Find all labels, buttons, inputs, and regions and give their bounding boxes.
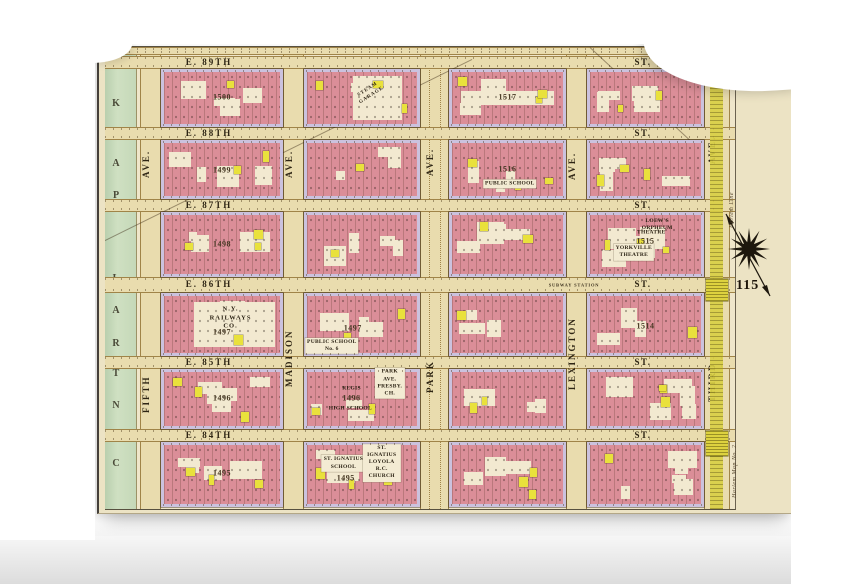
frame-building <box>618 105 623 112</box>
block-lot-ticks <box>589 426 702 428</box>
avenue-ave-label-park: AVE. <box>425 142 435 176</box>
city-block: 1495 <box>161 442 283 507</box>
city-block <box>304 212 420 277</box>
block-lot-ticks <box>306 426 418 428</box>
building-detail-speckle <box>452 372 563 426</box>
poi-label-regis2: HIGH SCHOOL <box>329 405 372 412</box>
poi-label-railways: N.Y. RAILWAYS CO. <box>204 306 256 331</box>
city-block <box>587 140 704 199</box>
central-park-label-letter: T <box>109 368 123 380</box>
frame-building <box>331 250 339 258</box>
frame-building <box>234 166 242 174</box>
building-detail-speckle <box>307 215 417 274</box>
city-block: 1496REGISHIGH SCHOOLPARK AVE. PRESBY. CH… <box>304 369 420 429</box>
city-block <box>449 212 566 277</box>
frame-building <box>538 90 547 98</box>
block-number: 1495 <box>213 468 231 477</box>
photo-table-surface <box>0 536 850 584</box>
street-s90 <box>105 47 735 55</box>
avenue-name-label-park: PARK <box>425 351 435 393</box>
street-name-label: E. 85TH <box>186 357 233 367</box>
city-block: STEAM GARAGE <box>304 69 420 127</box>
block-lot-ticks <box>589 294 702 296</box>
block-lot-ticks <box>451 213 564 215</box>
block-number: 1517 <box>499 92 517 101</box>
block-lot-ticks <box>163 504 281 506</box>
block-lot-ticks <box>306 124 418 126</box>
block-lot-ticks <box>451 504 564 506</box>
poi-label-orpheum2: THEATRE <box>637 230 666 237</box>
avenue-ave-label-lexington: AVE. <box>567 146 577 180</box>
block-lot-ticks <box>589 504 702 506</box>
city-block: 1496 <box>161 369 283 429</box>
city-block: 1515LOEW'S ORPHEUMTHEATREYORKVILLE THEAT… <box>587 212 704 277</box>
block-lot-ticks <box>163 196 281 198</box>
frame-building <box>605 240 610 250</box>
block-buildings <box>452 445 563 504</box>
city-block: 1497N.Y. RAILWAYS CO. <box>161 293 283 356</box>
block-lot-ticks <box>451 196 564 198</box>
block-lot-ticks <box>163 274 281 276</box>
plate-number: 115 <box>736 278 759 294</box>
block-lot-ticks <box>589 196 702 198</box>
avenue-name-label-lexington: LEXINGTON <box>567 308 577 390</box>
poi-label-ps_lex: PUBLIC SCHOOL <box>483 179 537 188</box>
street-name-label: E. 87TH <box>186 200 233 210</box>
frame-building <box>482 397 487 405</box>
block-buildings <box>452 372 563 426</box>
city-block <box>587 369 704 429</box>
block-lot-ticks <box>306 274 418 276</box>
block-number: 1495 <box>337 473 355 482</box>
block-lot-ticks <box>451 370 564 372</box>
building-detail-speckle <box>452 445 563 504</box>
central-park-label-letter: A <box>109 158 123 170</box>
block-lot-ticks <box>163 353 281 355</box>
page-background-top <box>0 0 850 44</box>
street-suffix-label: ST. <box>634 279 651 289</box>
block-lot-ticks <box>163 370 281 372</box>
block-lot-ticks <box>451 274 564 276</box>
atlas-sheet: KRAPLARTNECE. 89THST.E. 88THST.E. 87THST… <box>97 46 793 514</box>
block-lot-ticks <box>451 353 564 355</box>
subway-station-label: SUBWAY STATION <box>549 283 600 288</box>
block-lot-ticks <box>589 370 702 372</box>
central-park-label-letter: K <box>109 98 123 110</box>
block-lot-ticks <box>451 294 564 296</box>
city-block <box>449 442 566 507</box>
frame-building <box>620 165 629 172</box>
avenue-name-label-fifth: FIFTH <box>141 363 151 413</box>
frame-building <box>255 243 262 250</box>
city-block: 1516PUBLIC SCHOOL <box>449 140 566 199</box>
frame-building <box>656 91 662 100</box>
frame-building <box>356 164 364 171</box>
street-name-label: E. 89TH <box>186 57 233 67</box>
block-buildings <box>452 296 563 353</box>
city-block <box>304 140 420 199</box>
poi-label-regis: REGIS <box>342 385 361 392</box>
block-lot-ticks <box>306 443 418 445</box>
street-suffix-label: ST. <box>634 200 651 210</box>
city-block <box>587 442 704 507</box>
frame-building <box>458 77 467 86</box>
block-lot-ticks <box>306 504 418 506</box>
city-block: 1500 <box>161 69 283 127</box>
city-block: 1497PUBLIC SCHOOL No. 6 <box>304 293 420 356</box>
central-park-label-letter: A <box>109 305 123 317</box>
frame-building <box>195 387 202 398</box>
block-lot-ticks <box>306 353 418 355</box>
frame-building <box>255 480 262 488</box>
central-park-label-letter: C <box>109 458 123 470</box>
block-lot-ticks <box>163 426 281 428</box>
frame-building <box>263 151 269 162</box>
block-lot-ticks <box>451 124 564 126</box>
city-block <box>449 293 566 356</box>
frame-building <box>227 81 234 89</box>
block-lot-ticks <box>163 294 281 296</box>
city-block: 1514 <box>587 293 704 356</box>
block-lot-ticks <box>451 426 564 428</box>
frame-building <box>173 378 182 386</box>
city-block: 1517 <box>449 69 566 127</box>
building-detail-speckle <box>590 372 701 426</box>
block-lot-ticks <box>306 141 418 143</box>
block-lot-ticks <box>589 443 702 445</box>
frame-building <box>529 490 536 499</box>
block-lot-ticks <box>163 124 281 126</box>
street-name-label: E. 88TH <box>186 128 233 138</box>
block-number: 1498 <box>213 240 231 249</box>
block-lot-ticks <box>589 274 702 276</box>
frame-building <box>523 235 533 243</box>
frame-building <box>312 408 320 416</box>
street-name-label: E. 84TH <box>186 430 233 440</box>
central-park-label-letter: R <box>109 338 123 350</box>
block-number: 1514 <box>637 321 655 330</box>
frame-building <box>688 327 696 337</box>
frame-building <box>468 159 477 167</box>
central-park-label-letter: N <box>109 400 123 412</box>
elevated-station <box>706 431 728 456</box>
city-block: 1495ST. IGNATIUS SCHOOLST. IGNATIUS LOYO… <box>304 442 420 507</box>
frame-building <box>402 104 408 112</box>
frame-building <box>661 397 670 408</box>
frame-building <box>536 97 541 103</box>
block-buildings <box>307 215 417 274</box>
block-lot-ticks <box>451 70 564 72</box>
street-lot-ticks <box>105 51 735 53</box>
block-lot-ticks <box>163 213 281 215</box>
frame-building <box>663 247 669 253</box>
frame-building <box>457 311 466 320</box>
block-buildings <box>590 445 701 504</box>
frame-building <box>480 222 488 231</box>
block-lot-ticks <box>163 443 281 445</box>
block-lot-ticks <box>451 443 564 445</box>
frame-building <box>530 468 537 477</box>
frame-building <box>398 309 405 320</box>
street-suffix-label: ST. <box>634 357 651 367</box>
frame-building <box>234 335 243 345</box>
block-number: 1516 <box>499 164 517 173</box>
frame-building <box>644 169 650 180</box>
block-lot-ticks <box>306 294 418 296</box>
building-detail-speckle <box>452 215 563 274</box>
frame-building <box>185 243 193 250</box>
block-lot-ticks <box>589 124 702 126</box>
avenue-ave-label-fifth: AVE. <box>141 144 151 178</box>
city-block: 1498 <box>161 212 283 277</box>
frame-building <box>605 454 612 463</box>
frame-building <box>470 403 477 414</box>
margin-note-top: Harlem Line <box>729 164 735 228</box>
block-buildings <box>590 372 701 426</box>
block-lot-ticks <box>306 370 418 372</box>
building-detail-speckle <box>452 296 563 353</box>
block-buildings <box>590 143 701 196</box>
block-lot-ticks <box>589 141 702 143</box>
frame-building <box>316 81 323 91</box>
frame-building <box>241 412 249 422</box>
poi-label-ps6: PUBLIC SCHOOL No. 6 <box>305 338 359 354</box>
block-lot-ticks <box>163 70 281 72</box>
street-lot-ticks <box>105 48 735 50</box>
avenue-name-label-madison: MADISON <box>284 321 294 387</box>
page-background-left <box>0 0 95 540</box>
block-number: 1499 <box>213 165 231 174</box>
frame-building <box>254 230 263 239</box>
map-area: KRAPLARTNECE. 89THST.E. 88THST.E. 87THST… <box>105 46 736 510</box>
street-suffix-label: ST. <box>634 128 651 138</box>
city-block: 1499 <box>161 140 283 199</box>
block-lot-ticks <box>306 213 418 215</box>
city-block <box>449 369 566 429</box>
street-suffix-label: ST. <box>634 57 651 67</box>
street-suffix-label: ST. <box>634 430 651 440</box>
street-name-label: E. 86TH <box>186 279 233 289</box>
block-buildings <box>452 215 563 274</box>
block-lot-ticks <box>589 213 702 215</box>
frame-building <box>659 385 666 391</box>
block-buildings <box>307 143 417 196</box>
poi-label-ign_school: ST. IGNATIUS SCHOOL <box>322 455 365 471</box>
block-lot-ticks <box>306 70 418 72</box>
frame-building <box>186 468 195 477</box>
block-lot-ticks <box>589 353 702 355</box>
block-number: 1500 <box>213 92 231 101</box>
block-lot-ticks <box>163 141 281 143</box>
block-lot-ticks <box>306 196 418 198</box>
block-number: 1496 <box>343 394 361 403</box>
poi-label-ign_church: ST. IGNATIUS LOYOLA R.C. CHURCH <box>363 444 401 482</box>
margin-note-bottom: Harlem Map No. 2 <box>732 428 738 498</box>
block-number: 1497 <box>344 323 362 332</box>
frame-building <box>545 178 552 185</box>
poi-label-presby: PARK AVE. PRESBY. CH. <box>375 368 405 399</box>
poi-label-yorkville: YORKVILLE THEATRE <box>614 244 654 260</box>
street-lot-ticks <box>105 289 735 291</box>
block-lot-ticks <box>451 141 564 143</box>
frame-building <box>519 477 527 488</box>
page-background-right <box>791 0 850 584</box>
product-photo-of-atlas-plate: KRAPLARTNECE. 89THST.E. 88THST.E. 87THST… <box>0 0 850 584</box>
frame-building <box>597 175 604 186</box>
block-number: 1496 <box>213 393 231 402</box>
